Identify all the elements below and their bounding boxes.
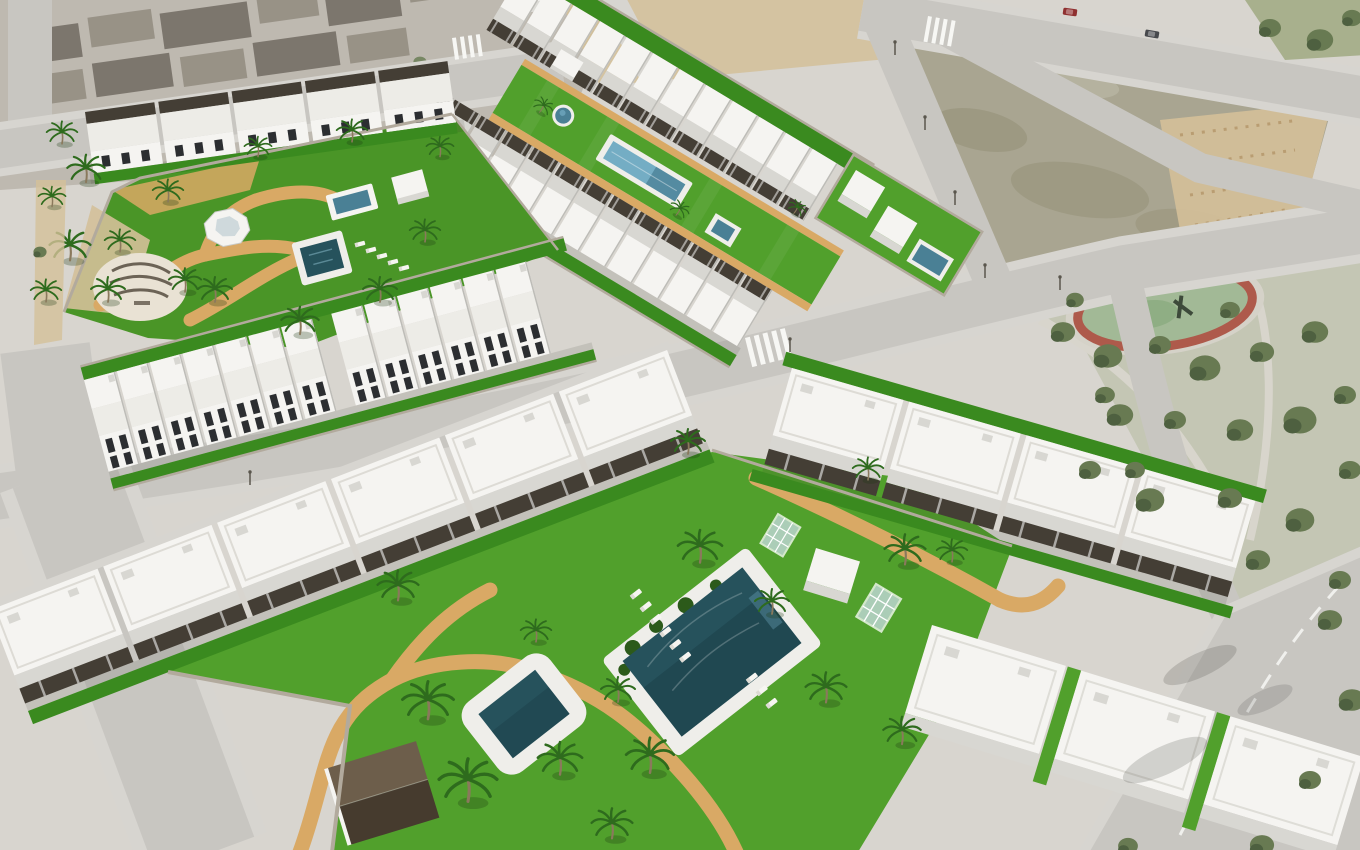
apartment-block	[158, 92, 236, 163]
tree-icon	[1259, 19, 1281, 37]
tree-icon	[1318, 610, 1342, 630]
apartment-block	[232, 82, 310, 153]
west-road	[45, 348, 62, 480]
aerial-render-image	[0, 0, 1360, 850]
roadside-planting	[31, 180, 66, 345]
render-canvas	[0, 0, 1360, 850]
tree-icon	[33, 247, 46, 258]
tree-icon	[1307, 29, 1333, 51]
tree-icon	[1299, 771, 1321, 789]
apartment-block	[85, 102, 163, 173]
